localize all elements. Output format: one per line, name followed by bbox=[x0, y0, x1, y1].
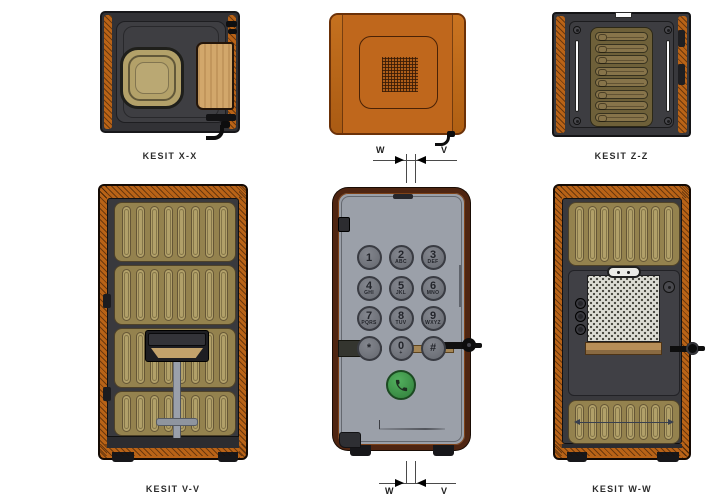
keypad-cell: 6MNO bbox=[417, 273, 449, 303]
stool-seat-wood bbox=[151, 348, 203, 358]
label-kesit-xx: KESIT X-X bbox=[100, 151, 240, 161]
seat-cushion bbox=[135, 62, 169, 94]
slat bbox=[122, 332, 131, 384]
slat bbox=[136, 269, 145, 321]
roof-side-left bbox=[331, 15, 343, 133]
keypad-digit: 9 bbox=[430, 311, 436, 321]
slat bbox=[122, 395, 131, 432]
stool-seat-top bbox=[148, 333, 206, 346]
slat bbox=[177, 269, 186, 321]
corner-guard-bottom-left bbox=[339, 432, 361, 448]
view-roof-top bbox=[329, 13, 466, 135]
slat bbox=[177, 206, 186, 258]
keypad-letters: JKL bbox=[396, 291, 406, 296]
keypad-cell: * bbox=[353, 333, 385, 363]
keypad-digit: 0 bbox=[398, 341, 404, 351]
label-kesit-ww: KESIT W-W bbox=[553, 484, 691, 494]
stool-column bbox=[173, 362, 181, 438]
grille-handle bbox=[607, 266, 641, 278]
keypad-button-3: 3DEF bbox=[421, 245, 446, 270]
slat bbox=[639, 206, 648, 262]
shell-hatch-top bbox=[100, 186, 246, 198]
knob bbox=[575, 311, 586, 322]
slat bbox=[205, 206, 214, 258]
screw bbox=[573, 26, 581, 34]
seat-plan bbox=[120, 47, 184, 109]
shell-hatch-right bbox=[682, 186, 689, 458]
keypad-button-1: 1 bbox=[357, 245, 382, 270]
slat bbox=[164, 395, 173, 432]
keypad-digit: 8 bbox=[398, 311, 404, 321]
slat bbox=[150, 395, 159, 432]
keypad-cell: 4GHI bbox=[353, 273, 385, 303]
keypad-cell: 3DEF bbox=[417, 242, 449, 273]
latch-left-lower bbox=[103, 387, 111, 401]
keypad-button-9: 9WXYZ bbox=[421, 306, 446, 331]
latch-tip bbox=[474, 343, 482, 348]
phone-handset-icon bbox=[394, 378, 409, 393]
cut-line-w bbox=[406, 461, 407, 484]
screw-top-right bbox=[663, 281, 675, 293]
foot-right bbox=[433, 445, 454, 456]
keypad-cell: 1 bbox=[353, 242, 385, 273]
wooden-shelf bbox=[585, 342, 662, 355]
slat bbox=[136, 395, 145, 432]
slat bbox=[136, 206, 145, 258]
keypad-cell: 7PQRS bbox=[353, 303, 385, 333]
slat bbox=[164, 206, 173, 258]
slat bbox=[205, 269, 214, 321]
cut-arrow-left bbox=[395, 156, 404, 164]
slat bbox=[595, 113, 648, 122]
door-edge-detail bbox=[206, 114, 236, 121]
keypad-letters: GHI bbox=[364, 291, 374, 296]
cut-line-w bbox=[406, 154, 407, 183]
screw bbox=[664, 117, 672, 125]
screw bbox=[664, 26, 672, 34]
slat bbox=[122, 206, 131, 258]
keypad-cell: 0+ bbox=[385, 333, 417, 363]
marker-letter-w: W bbox=[376, 145, 385, 155]
slat-panel-1 bbox=[114, 202, 236, 262]
latch-knob-hole bbox=[467, 343, 471, 347]
slat bbox=[122, 269, 131, 321]
perforated-grille bbox=[587, 275, 660, 342]
roof-side-right bbox=[452, 15, 464, 133]
slat bbox=[219, 332, 228, 384]
keypad: 12ABC3DEF4GHI5JKL6MNO7PQRS8TUV9WXYZ*0+# bbox=[353, 242, 449, 363]
keypad-letters: PQRS bbox=[361, 321, 376, 326]
view-kesit-vv bbox=[98, 184, 248, 460]
keypad-letters: MNO bbox=[427, 291, 440, 296]
label-kesit-zz: KESIT Z-Z bbox=[552, 151, 691, 161]
keypad-button-5: 5JKL bbox=[389, 276, 414, 301]
slat bbox=[664, 206, 673, 262]
floor-strip bbox=[562, 444, 682, 448]
screw bbox=[573, 117, 581, 125]
handle-dot bbox=[617, 271, 620, 274]
dimension-arrow bbox=[577, 422, 671, 423]
cut-arrow-right bbox=[417, 156, 426, 164]
keypad-digit: 6 bbox=[430, 281, 436, 291]
knob bbox=[575, 298, 586, 309]
slat bbox=[191, 395, 200, 432]
top-vent-slot bbox=[393, 194, 413, 199]
cut-arrow-left bbox=[395, 479, 404, 487]
keypad-button-8: 8TUV bbox=[389, 306, 414, 331]
cut-arrow-right bbox=[417, 479, 426, 487]
latch-right-upper bbox=[678, 30, 685, 47]
latch-left-upper bbox=[103, 294, 111, 308]
keypad-button-2: 2ABC bbox=[389, 245, 414, 270]
marker-letter-v: V bbox=[441, 486, 447, 496]
keypad-digit: 1 bbox=[366, 253, 372, 263]
slat bbox=[205, 395, 214, 432]
shell-hatch-right bbox=[239, 186, 246, 458]
keypad-cell: 9WXYZ bbox=[417, 303, 449, 333]
door-knob-tip bbox=[698, 346, 705, 351]
slat bbox=[613, 206, 622, 262]
shell-wall-left bbox=[556, 16, 565, 133]
keypad-cell: 2ABC bbox=[385, 242, 417, 273]
dimension-arrow-right bbox=[668, 419, 674, 425]
crack-line-vertical bbox=[379, 420, 380, 429]
hinge-top-right-2 bbox=[228, 29, 237, 34]
slat-panel-top bbox=[568, 202, 680, 266]
keypad-button-star: * bbox=[357, 336, 382, 361]
slat bbox=[595, 90, 648, 99]
keypad-button-0: 0+ bbox=[389, 336, 414, 361]
slat bbox=[575, 206, 584, 262]
slat bbox=[595, 101, 648, 110]
shell-hatch-top bbox=[555, 186, 689, 198]
keypad-digit: 7 bbox=[366, 311, 372, 321]
slat bbox=[150, 206, 159, 258]
slat bbox=[219, 269, 228, 321]
latch-top-left bbox=[338, 217, 350, 232]
keypad-digit: 5 bbox=[398, 281, 404, 291]
keypad-cell: 8TUV bbox=[385, 303, 417, 333]
keypad-digit: # bbox=[430, 343, 436, 353]
stool-recess bbox=[145, 330, 209, 362]
shell-hatch-left bbox=[100, 186, 107, 458]
keypad-letters: TUV bbox=[396, 321, 407, 326]
slat bbox=[588, 206, 597, 262]
slat bbox=[219, 395, 228, 432]
keypad-letters: ABC bbox=[395, 260, 407, 265]
slat bbox=[191, 206, 200, 258]
slat bbox=[595, 32, 648, 41]
slat-panel-2 bbox=[114, 265, 236, 325]
door-seam-right bbox=[459, 265, 461, 307]
roof-vent-tab bbox=[615, 12, 632, 18]
label-kesit-vv: KESIT V-V bbox=[98, 484, 248, 494]
keypad-button-hash: # bbox=[421, 336, 446, 361]
door-handle-hook bbox=[206, 125, 224, 140]
call-button bbox=[386, 370, 416, 400]
slat bbox=[150, 269, 159, 321]
shell-hatch-left bbox=[555, 186, 562, 458]
handle-dot bbox=[627, 271, 630, 274]
keypad-letters: WXYZ bbox=[425, 321, 441, 326]
hinge-top-right bbox=[226, 21, 237, 27]
slat bbox=[651, 206, 660, 262]
cad-drawing-sheet: KESIT X-X W V KESIT Z-Z bbox=[0, 0, 707, 500]
view-kesit-zz bbox=[552, 12, 691, 137]
slat bbox=[219, 206, 228, 258]
slat bbox=[595, 55, 648, 64]
ceiling-slat-panel bbox=[590, 27, 653, 127]
slat bbox=[191, 269, 200, 321]
keypad-letters: + bbox=[399, 351, 402, 356]
keypad-button-4: 4GHI bbox=[357, 276, 382, 301]
keypad-cell: 5JKL bbox=[385, 273, 417, 303]
cut-line-v bbox=[415, 461, 416, 484]
view-door-front: 12ABC3DEF4GHI5JKL6MNO7PQRS8TUV9WXYZ*0+# bbox=[333, 188, 470, 450]
slat bbox=[595, 44, 648, 53]
shell-wall-left bbox=[104, 15, 112, 129]
slat bbox=[600, 206, 609, 262]
table-plan bbox=[196, 42, 234, 110]
marker-letter-v: V bbox=[441, 145, 447, 155]
keypad-button-7: 7PQRS bbox=[357, 306, 382, 331]
light-slot-left bbox=[575, 40, 579, 112]
speaker-grille bbox=[382, 57, 418, 92]
latch-right-lower bbox=[678, 64, 685, 85]
keypad-cell: # bbox=[417, 333, 449, 363]
view-kesit-ww bbox=[553, 184, 691, 460]
view-kesit-xx bbox=[100, 11, 240, 133]
dimension-arrow-left bbox=[574, 419, 580, 425]
keypad-letters: DEF bbox=[428, 260, 439, 265]
keypad-digit: 4 bbox=[366, 281, 372, 291]
slat bbox=[595, 67, 648, 76]
slat bbox=[595, 78, 648, 87]
marker-letter-w: W bbox=[385, 486, 394, 496]
cut-line-v bbox=[415, 154, 416, 183]
knob bbox=[575, 324, 586, 335]
keypad-digit: * bbox=[367, 343, 371, 353]
slat bbox=[626, 206, 635, 262]
slat bbox=[136, 332, 145, 384]
light-slot-right bbox=[666, 40, 670, 112]
slat bbox=[164, 269, 173, 321]
stool-base-bar bbox=[156, 418, 198, 426]
keypad-button-6: 6MNO bbox=[421, 276, 446, 301]
